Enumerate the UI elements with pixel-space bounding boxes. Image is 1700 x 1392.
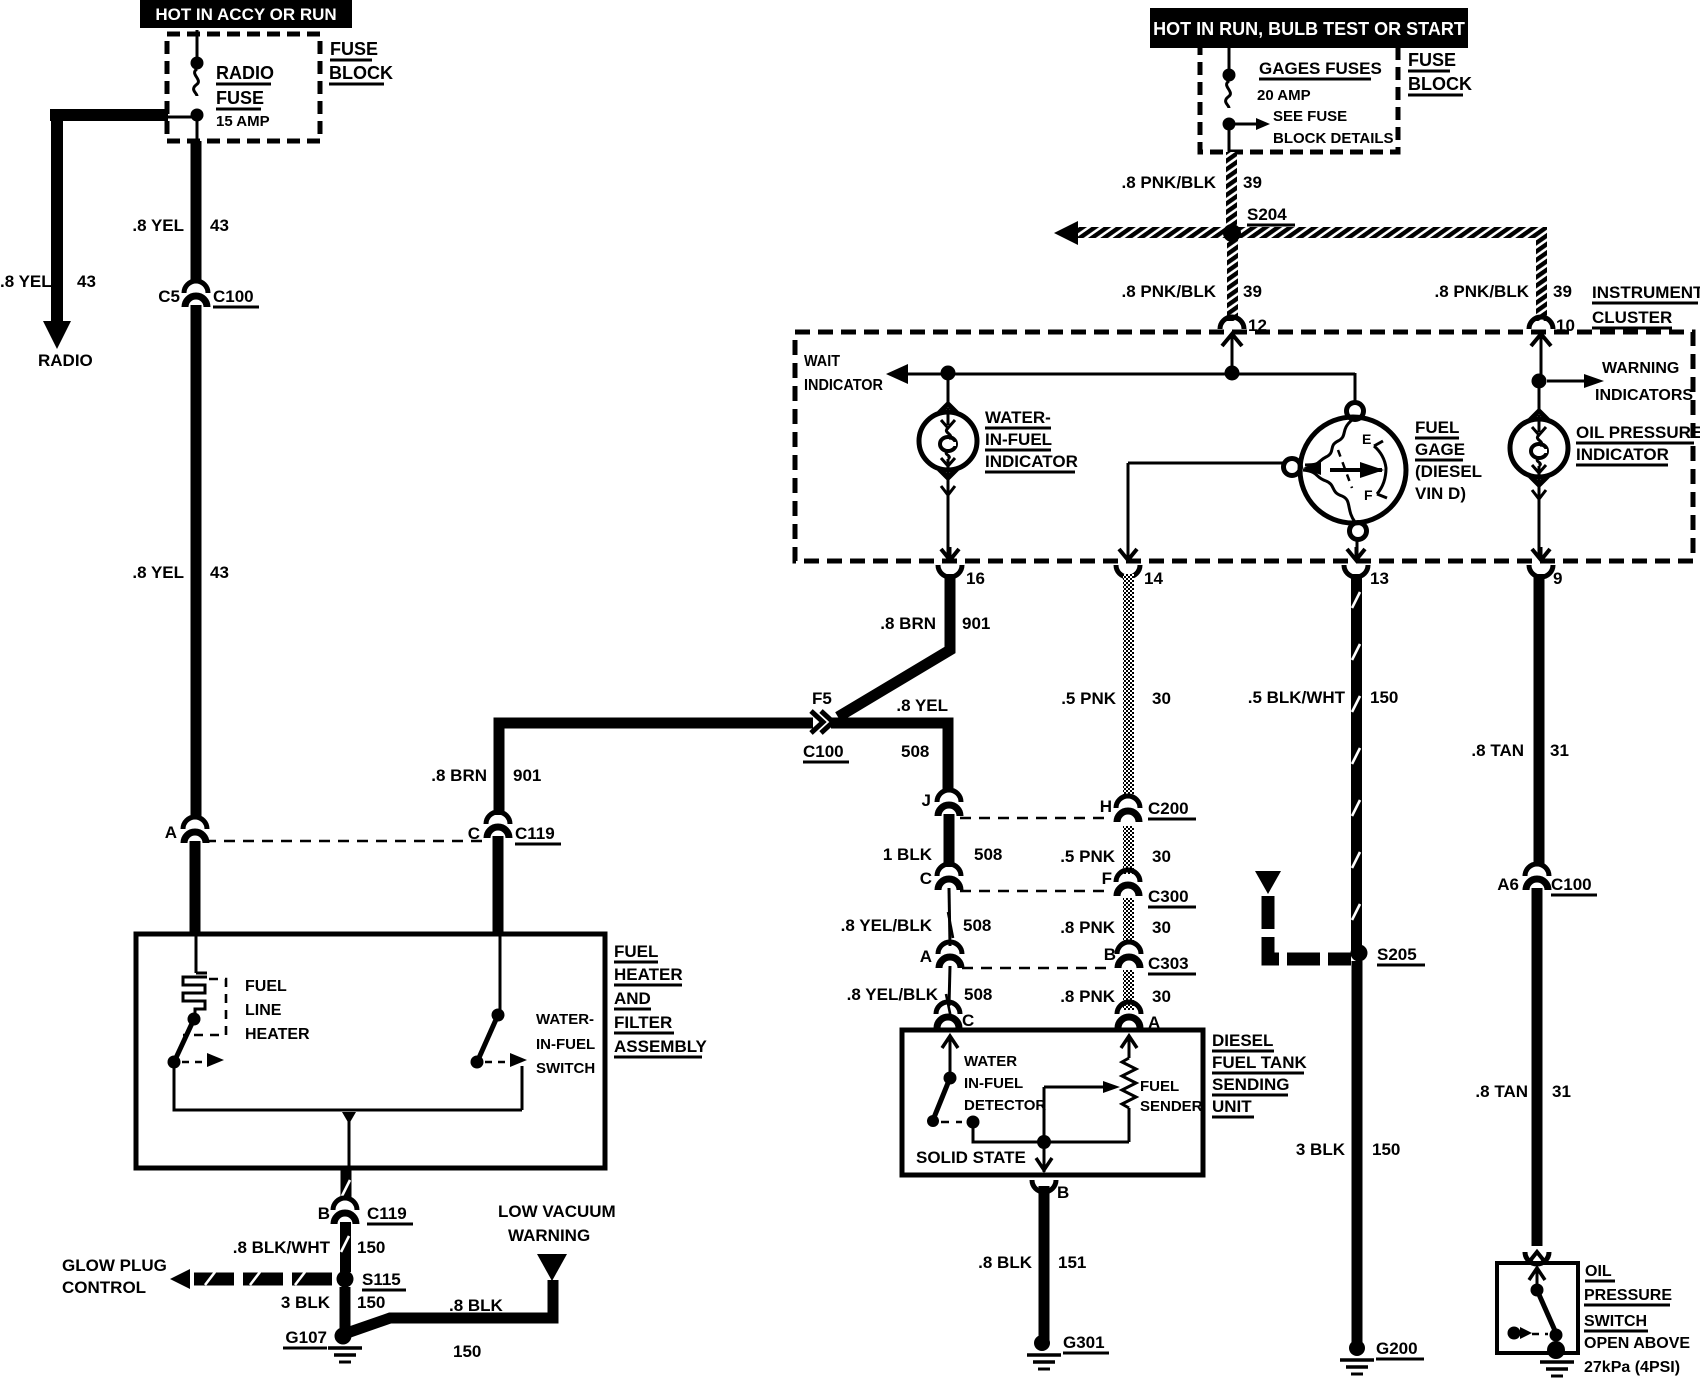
- svg-text:PRESSURE: PRESSURE: [1584, 1287, 1672, 1304]
- svg-text:HEATER: HEATER: [614, 965, 683, 984]
- svg-text:FUEL TANK: FUEL TANK: [1212, 1053, 1307, 1072]
- svg-text:.8 BLK/WHT: .8 BLK/WHT: [233, 1238, 331, 1257]
- svg-text:901: 901: [962, 614, 990, 633]
- svg-text:HOT IN ACCY OR RUN: HOT IN ACCY OR RUN: [155, 5, 336, 24]
- svg-text:G301: G301: [1063, 1333, 1105, 1352]
- svg-text:C119: C119: [367, 1204, 407, 1223]
- svg-text:J: J: [922, 791, 931, 810]
- svg-text:INDICATOR: INDICATOR: [1576, 445, 1669, 464]
- svg-text:150: 150: [453, 1342, 481, 1361]
- svg-text:.8 YEL: .8 YEL: [132, 216, 184, 235]
- svg-text:OPEN ABOVE: OPEN ABOVE: [1584, 1335, 1690, 1352]
- svg-text:C100: C100: [213, 287, 254, 306]
- svg-text:OIL: OIL: [1585, 1263, 1612, 1280]
- svg-text:.8 BRN: .8 BRN: [880, 614, 936, 633]
- svg-text:INDICATOR: INDICATOR: [985, 452, 1078, 471]
- svg-text:HOT IN RUN, BULB TEST OR START: HOT IN RUN, BULB TEST OR START: [1153, 19, 1465, 39]
- svg-text:.8 TAN: .8 TAN: [1471, 741, 1524, 760]
- svg-text:SENDER: SENDER: [1140, 1098, 1203, 1115]
- svg-text:FUEL: FUEL: [614, 942, 658, 961]
- svg-text:WARNING: WARNING: [1602, 360, 1679, 377]
- svg-text:VIN D): VIN D): [1415, 484, 1466, 503]
- svg-text:30: 30: [1152, 987, 1171, 1006]
- svg-text:9: 9: [1553, 569, 1562, 588]
- svg-text:508: 508: [964, 985, 992, 1004]
- svg-text:FUEL: FUEL: [245, 978, 287, 995]
- svg-text:150: 150: [1370, 688, 1398, 707]
- svg-text:150: 150: [357, 1238, 385, 1257]
- svg-text:BLOCK: BLOCK: [329, 63, 393, 83]
- svg-text:F5: F5: [812, 689, 832, 708]
- svg-text:CLUSTER: CLUSTER: [1592, 308, 1672, 327]
- svg-text:AND: AND: [614, 989, 651, 1008]
- svg-text:C119: C119: [515, 824, 555, 843]
- svg-text:C100: C100: [803, 742, 844, 761]
- svg-text:.8 BRN: .8 BRN: [431, 766, 487, 785]
- svg-text:30: 30: [1152, 918, 1171, 937]
- svg-text:INDICATORS: INDICATORS: [1595, 387, 1693, 404]
- svg-text:C: C: [920, 869, 932, 888]
- svg-text:SOLID STATE: SOLID STATE: [916, 1148, 1026, 1167]
- svg-text:BLOCK DETAILS: BLOCK DETAILS: [1273, 130, 1394, 147]
- svg-text:S115: S115: [362, 1270, 401, 1289]
- svg-text:39: 39: [1553, 282, 1572, 301]
- svg-text:DETECTOR: DETECTOR: [964, 1097, 1046, 1114]
- svg-text:SWITCH: SWITCH: [1584, 1313, 1647, 1330]
- svg-text:S204: S204: [1247, 205, 1287, 224]
- svg-text:16: 16: [966, 569, 985, 588]
- svg-text:.5 PNK: .5 PNK: [1061, 689, 1117, 708]
- svg-text:31: 31: [1552, 1082, 1571, 1101]
- svg-text:43: 43: [77, 272, 96, 291]
- svg-text:UNIT: UNIT: [1212, 1097, 1252, 1116]
- svg-text:A6: A6: [1497, 875, 1519, 894]
- svg-text:INSTRUMENT: INSTRUMENT: [1592, 283, 1700, 302]
- svg-text:GLOW PLUG: GLOW PLUG: [62, 1256, 167, 1275]
- svg-text:WATER-: WATER-: [536, 1011, 594, 1028]
- svg-text:30: 30: [1152, 847, 1171, 866]
- svg-text:LINE: LINE: [245, 1002, 282, 1019]
- svg-text:S205: S205: [1377, 945, 1417, 964]
- svg-text:.5 BLK/WHT: .5 BLK/WHT: [1248, 688, 1346, 707]
- svg-text:FUEL: FUEL: [1415, 418, 1459, 437]
- svg-text:39: 39: [1243, 173, 1262, 192]
- svg-text:OIL PRESSURE: OIL PRESSURE: [1576, 423, 1700, 442]
- svg-text:.8 YEL: .8 YEL: [132, 563, 184, 582]
- svg-text:SENDING: SENDING: [1212, 1075, 1289, 1094]
- svg-text:B: B: [318, 1204, 330, 1223]
- svg-text:FILTER: FILTER: [614, 1013, 672, 1032]
- svg-text:C5: C5: [158, 287, 180, 306]
- svg-text:14: 14: [1144, 569, 1163, 588]
- svg-text:DIESEL: DIESEL: [1212, 1031, 1273, 1050]
- svg-text:.8 PNK: .8 PNK: [1060, 918, 1116, 937]
- svg-text:BLOCK: BLOCK: [1408, 74, 1472, 94]
- svg-text:INDICATOR: INDICATOR: [804, 377, 883, 394]
- svg-text:RADIO: RADIO: [38, 351, 93, 370]
- svg-text:C200: C200: [1148, 799, 1189, 818]
- svg-text:3 BLK: 3 BLK: [1296, 1140, 1346, 1159]
- svg-text:IN-FUEL: IN-FUEL: [985, 430, 1052, 449]
- svg-text:FUSE: FUSE: [1408, 50, 1456, 70]
- svg-text:C300: C300: [1148, 887, 1189, 906]
- svg-text:IN-FUEL: IN-FUEL: [964, 1075, 1023, 1092]
- svg-text:.8 PNK/BLK: .8 PNK/BLK: [1122, 173, 1217, 192]
- svg-text:.8 BLK: .8 BLK: [449, 1296, 504, 1315]
- svg-text:508: 508: [963, 916, 991, 935]
- svg-text:A: A: [920, 947, 932, 966]
- svg-text:20 AMP: 20 AMP: [1257, 87, 1311, 104]
- svg-text:ASSEMBLY: ASSEMBLY: [614, 1037, 708, 1056]
- svg-text:C303: C303: [1148, 954, 1189, 973]
- svg-text:B: B: [1057, 1183, 1069, 1202]
- svg-text:31: 31: [1550, 741, 1569, 760]
- svg-text:GAGE: GAGE: [1415, 440, 1465, 459]
- svg-text:C100: C100: [1551, 875, 1592, 894]
- svg-text:G107: G107: [285, 1328, 327, 1347]
- svg-text:.8 YEL/BLK: .8 YEL/BLK: [847, 985, 939, 1004]
- svg-text:HEATER: HEATER: [245, 1026, 310, 1043]
- svg-text:LOW VACUUM: LOW VACUUM: [498, 1202, 616, 1221]
- svg-text:RADIO: RADIO: [216, 63, 274, 83]
- svg-text:150: 150: [357, 1293, 385, 1312]
- svg-text:WAIT: WAIT: [804, 353, 840, 370]
- svg-text:C: C: [962, 1011, 974, 1030]
- svg-text:FUEL: FUEL: [1140, 1078, 1179, 1095]
- svg-text:.8 YEL: .8 YEL: [896, 696, 948, 715]
- svg-text:901: 901: [513, 766, 541, 785]
- svg-text:39: 39: [1243, 282, 1262, 301]
- svg-text:.8 YEL/BLK: .8 YEL/BLK: [841, 916, 933, 935]
- svg-text:151: 151: [1058, 1253, 1086, 1272]
- svg-text:FUSE: FUSE: [330, 39, 378, 59]
- svg-text:SEE FUSE: SEE FUSE: [1273, 108, 1347, 125]
- svg-text:.8 PNK/BLK: .8 PNK/BLK: [1122, 282, 1217, 301]
- svg-text:CONTROL: CONTROL: [62, 1278, 146, 1297]
- svg-text:.8 PNK: .8 PNK: [1060, 987, 1116, 1006]
- svg-text:WATER-: WATER-: [985, 408, 1051, 427]
- svg-text:.8 BLK: .8 BLK: [978, 1253, 1033, 1272]
- svg-text:508: 508: [974, 845, 1002, 864]
- svg-text:WARNING: WARNING: [508, 1226, 590, 1245]
- svg-text:43: 43: [210, 563, 229, 582]
- svg-text:.8 TAN: .8 TAN: [1475, 1082, 1528, 1101]
- svg-text:SWITCH: SWITCH: [536, 1060, 595, 1077]
- svg-text:IN-FUEL: IN-FUEL: [536, 1036, 595, 1053]
- svg-text:508: 508: [901, 742, 929, 761]
- svg-text:F: F: [1364, 487, 1373, 503]
- svg-text:.5 PNK: .5 PNK: [1060, 847, 1116, 866]
- svg-text:.8 PNK/BLK: .8 PNK/BLK: [1435, 282, 1530, 301]
- svg-text:27kPa (4PSI): 27kPa (4PSI): [1584, 1359, 1680, 1376]
- svg-text:1 BLK: 1 BLK: [883, 845, 933, 864]
- svg-text:FUSE: FUSE: [216, 88, 264, 108]
- svg-text:150: 150: [1372, 1140, 1400, 1159]
- svg-text:E: E: [1362, 431, 1371, 447]
- svg-text:G200: G200: [1376, 1339, 1418, 1358]
- svg-text:43: 43: [210, 216, 229, 235]
- svg-text:15 AMP: 15 AMP: [216, 113, 270, 130]
- svg-text:C: C: [468, 824, 480, 843]
- svg-text:13: 13: [1370, 569, 1389, 588]
- svg-text:H: H: [1100, 797, 1112, 816]
- svg-text:B: B: [1104, 945, 1116, 964]
- svg-text:WATER: WATER: [964, 1053, 1017, 1070]
- svg-text:GAGES FUSES: GAGES FUSES: [1259, 59, 1382, 78]
- svg-text:30: 30: [1152, 689, 1171, 708]
- svg-text:3 BLK: 3 BLK: [281, 1293, 331, 1312]
- svg-text:(DIESEL: (DIESEL: [1415, 462, 1482, 481]
- svg-text:F: F: [1102, 869, 1112, 888]
- svg-text:.8 YEL: .8 YEL: [0, 272, 52, 291]
- svg-text:A: A: [165, 823, 177, 842]
